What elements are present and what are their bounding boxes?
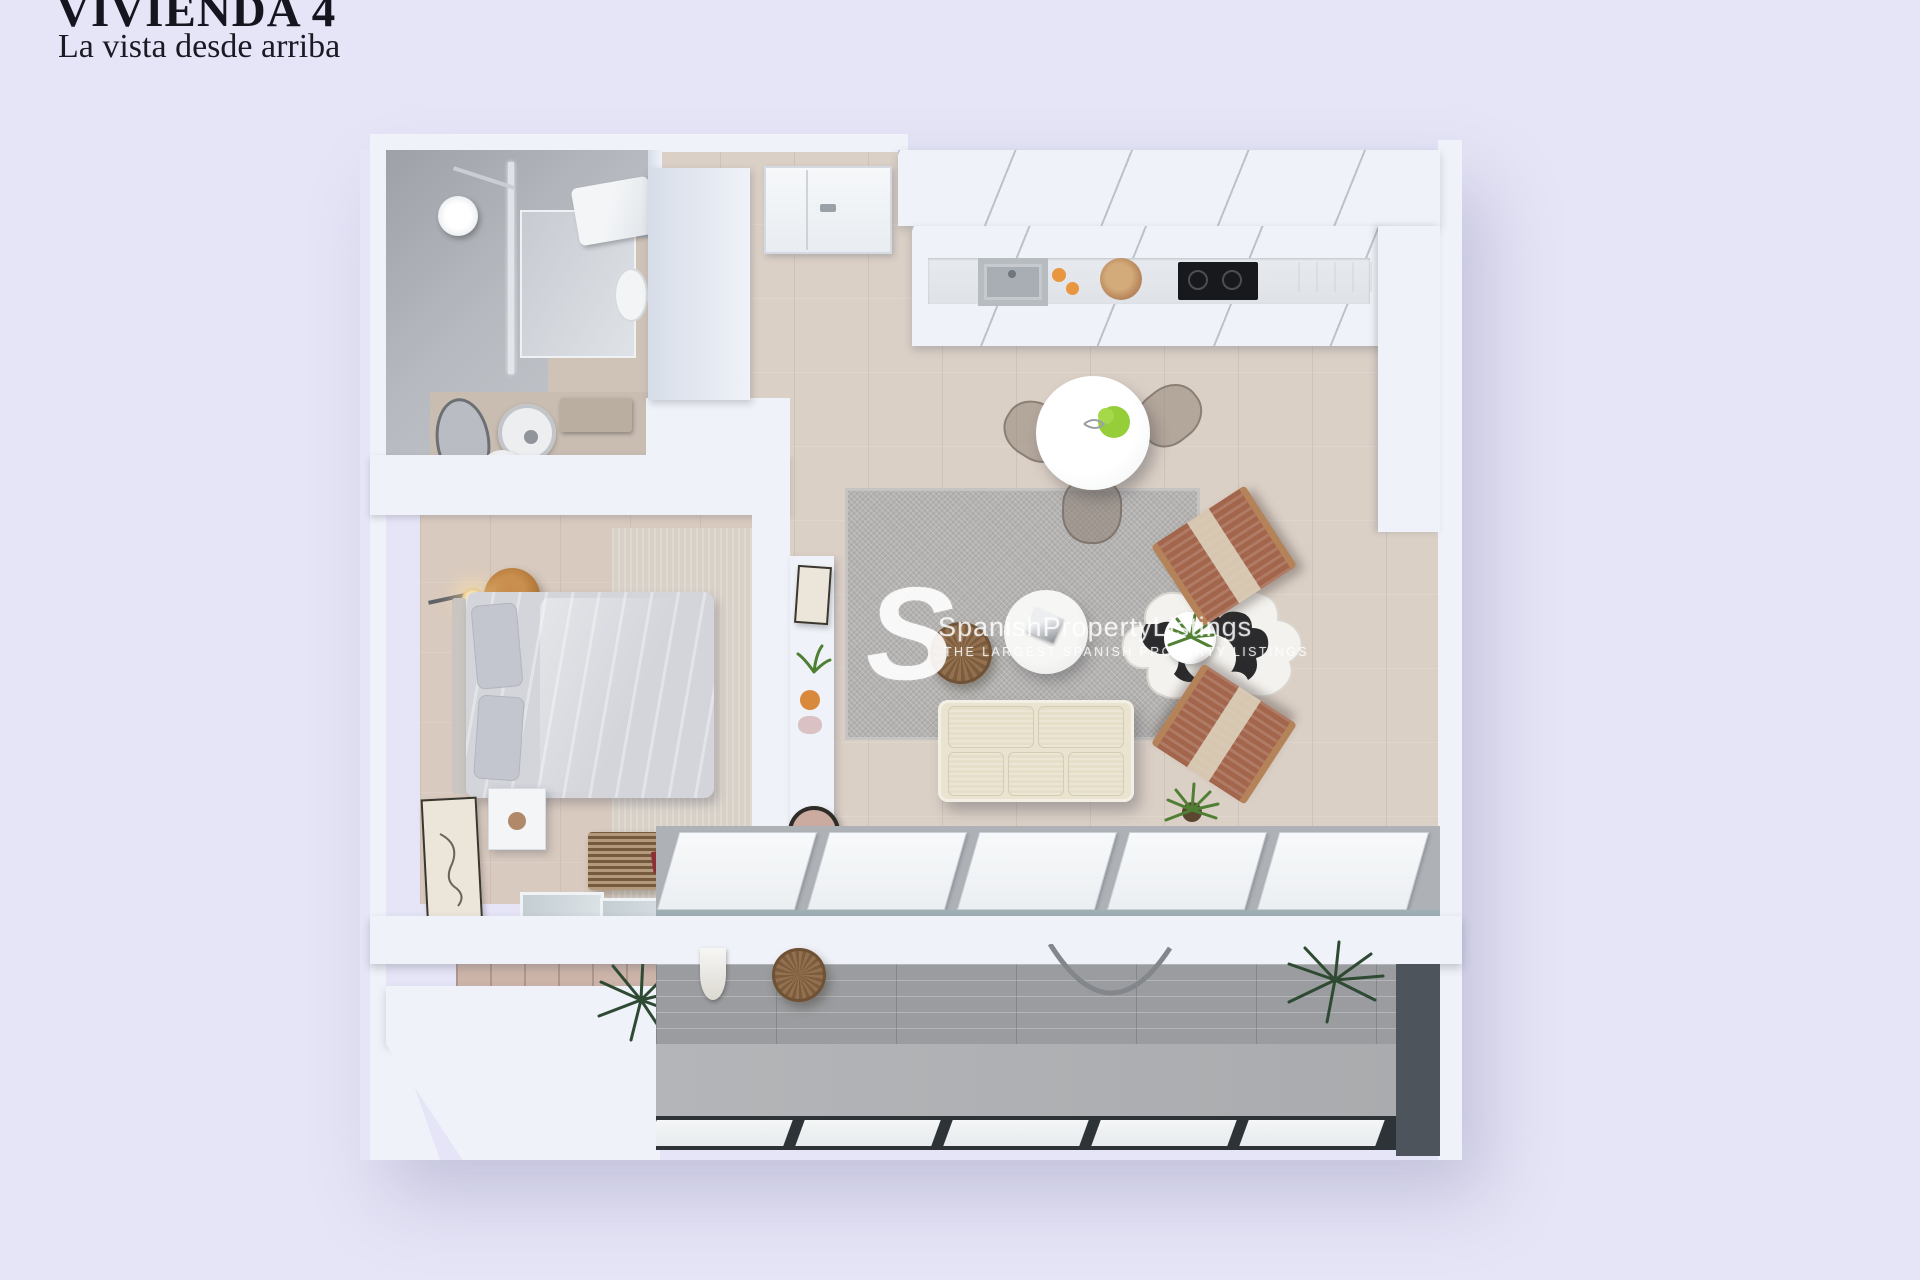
lounge-chair-bottom-strap — [1187, 687, 1261, 782]
console-vase — [800, 690, 820, 710]
hanging-rope-arc — [1040, 944, 1180, 1024]
wall-left — [370, 134, 386, 1044]
front-door-seam — [806, 170, 808, 250]
terrace-window-5 — [1239, 1120, 1384, 1146]
sliding-panel-4 — [1107, 832, 1267, 910]
terrace-dark-side-wall — [1396, 964, 1440, 1156]
console-bowl — [798, 716, 822, 734]
bath-accessory-tray — [560, 398, 632, 432]
floor-plan-page: VIVIENDA 4 La vista desde arriba — [0, 0, 1920, 1280]
bed-duvet-highlight — [540, 598, 712, 792]
terrace-floor — [656, 1044, 1396, 1116]
bed-pillow-1 — [470, 602, 523, 690]
terrace-window-2 — [795, 1120, 940, 1146]
sliding-panel-5 — [1257, 832, 1429, 910]
wall-right — [1438, 140, 1462, 1160]
built-in-oven — [1298, 262, 1382, 292]
sliding-panel-1 — [657, 832, 817, 910]
sliding-panel-2 — [807, 832, 967, 910]
palm-plant-right — [1270, 940, 1400, 1030]
watermark-brand: SpanishPropertyListings — [938, 612, 1252, 643]
kitchen-upper-cabinets — [898, 150, 1440, 226]
bedroom-art-sketch — [430, 824, 474, 908]
lounge-chair-top-strap — [1187, 509, 1261, 604]
terrace-window-1 — [647, 1120, 792, 1146]
bed-headboard — [452, 598, 466, 794]
nightstand-decor — [508, 812, 526, 830]
terrace-window-4 — [1091, 1120, 1236, 1146]
sofa-seat-cushion-3 — [1068, 752, 1124, 796]
sofa-seat-cushion-1 — [948, 752, 1004, 796]
sofa-back-cushion-1 — [948, 706, 1034, 748]
wall-bathroom-bottom — [370, 455, 790, 515]
shower-head — [438, 196, 478, 236]
shower-glass-panel — [508, 162, 514, 374]
sliding-panel-3 — [957, 832, 1117, 910]
wicker-pendant-lamp — [772, 948, 826, 1002]
burner-ring-2 — [1222, 270, 1242, 290]
terrace-window-3 — [943, 1120, 1088, 1146]
console-frame-art-1 — [794, 565, 832, 625]
induction-cooktop — [1178, 262, 1258, 300]
sofa-back-cushion-2 — [1038, 706, 1124, 748]
kitchen-faucet — [1008, 270, 1016, 278]
wall-top-bathroom — [370, 134, 662, 150]
entry-wardrobe — [648, 168, 750, 400]
macrame-hanging — [700, 948, 726, 1000]
wooden-plate — [1100, 258, 1142, 300]
burner-ring-1 — [1188, 270, 1208, 290]
fruit-orange-1 — [1052, 268, 1066, 282]
bed-pillow-2 — [473, 694, 525, 781]
page-subtitle: La vista desde arriba — [58, 28, 340, 66]
wall-top-entry — [648, 134, 908, 152]
wall-hall-stub — [646, 398, 790, 458]
watermark-tagline: THE LARGEST SPANISH PROPERTY LISTINGS — [944, 645, 1309, 659]
basin-drain — [524, 430, 538, 444]
console-plant — [794, 632, 834, 678]
front-door-handle — [820, 204, 836, 212]
toilet — [614, 268, 648, 322]
sofa-seat-cushion-2 — [1008, 752, 1064, 796]
kitchen-tall-column — [1378, 226, 1440, 532]
table-plant-bowl — [1076, 400, 1136, 450]
fruit-orange-2 — [1066, 282, 1079, 295]
